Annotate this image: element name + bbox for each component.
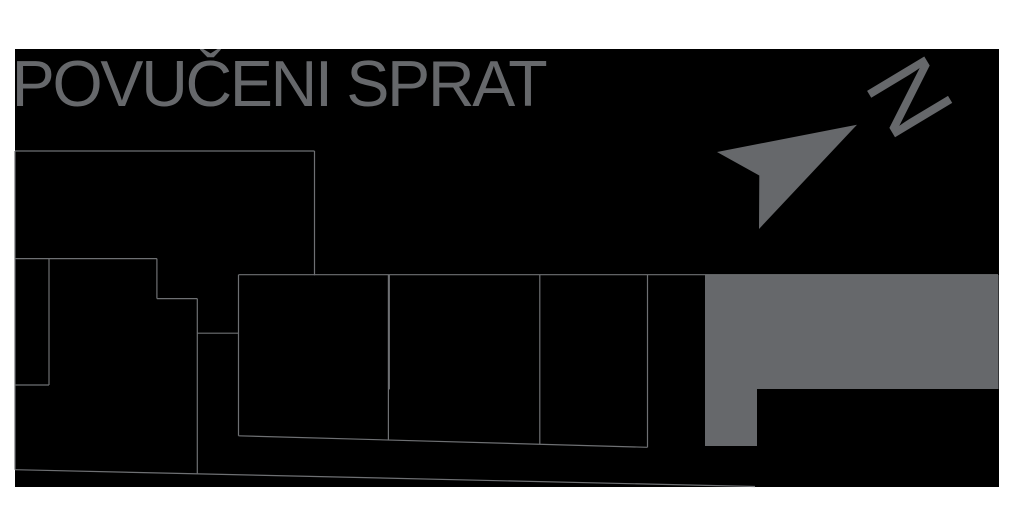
svg-text:POVUČENI SPRAT: POVUČENI SPRAT [12, 48, 548, 120]
